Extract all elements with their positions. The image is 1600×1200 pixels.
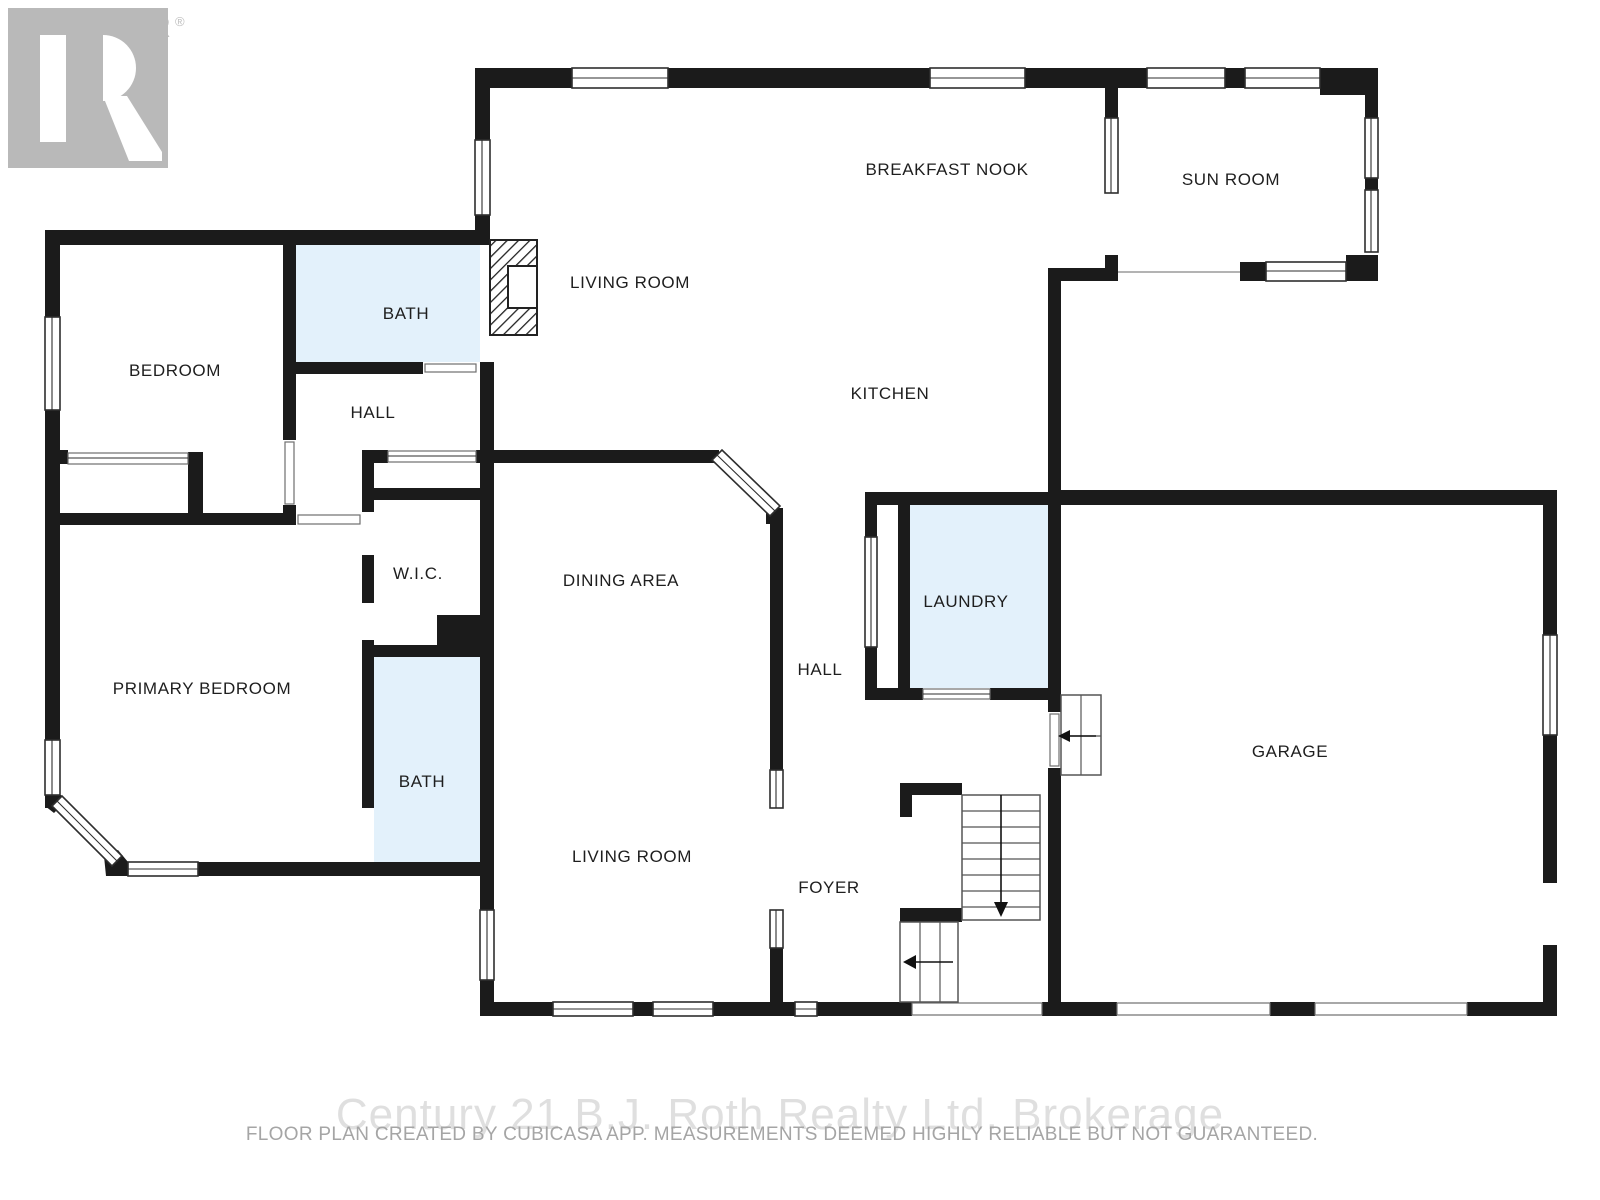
fireplace [490, 240, 537, 335]
garage-door-left [1117, 1003, 1270, 1015]
stairs-garage-entry [1058, 695, 1101, 775]
room-label-sun-room: SUN ROOM [1182, 170, 1280, 190]
room-label-wic: W.I.C. [393, 564, 443, 584]
room-label-bath-lower: BATH [399, 772, 445, 792]
room-label-bedroom: BEDROOM [129, 361, 221, 381]
room-label-breakfast-nook: BREAKFAST NOOK [865, 160, 1028, 180]
room-label-living-room-lower: LIVING ROOM [572, 847, 692, 867]
stairs-lower [900, 922, 958, 1002]
room-label-primary-bedroom: PRIMARY BEDROOM [113, 679, 291, 699]
floor-plan-drawing [0, 0, 1600, 1200]
room-label-dining-area: DINING AREA [563, 571, 679, 591]
registered-mark: ® [175, 14, 185, 29]
stairs-main [962, 795, 1040, 920]
room-label-living-room-upper: LIVING ROOM [570, 273, 690, 293]
room-label-bath-upper: BATH [383, 304, 429, 324]
walls [45, 68, 1557, 1016]
garage-door-right [1315, 1003, 1467, 1015]
room-label-hall-lower: HALL [798, 660, 843, 680]
room-label-garage: GARAGE [1252, 742, 1328, 762]
wet-room-fills [296, 245, 1048, 862]
room-label-kitchen: KITCHEN [851, 384, 930, 404]
disclaimer-text: FLOOR PLAN CREATED BY CUBICASA APP. MEAS… [246, 1124, 1318, 1146]
realtor-logo: REALTOR® [8, 8, 188, 45]
front-door-threshold [912, 1003, 1042, 1015]
room-label-hall-upper: HALL [351, 403, 396, 423]
doors [68, 272, 1467, 1015]
room-label-foyer: FOYER [798, 878, 860, 898]
realtor-r-icon [8, 8, 168, 168]
room-label-laundry: LAUNDRY [923, 592, 1008, 612]
floor-plan-page: BREAKFAST NOOK SUN ROOM LIVING ROOM BATH… [0, 0, 1600, 1200]
